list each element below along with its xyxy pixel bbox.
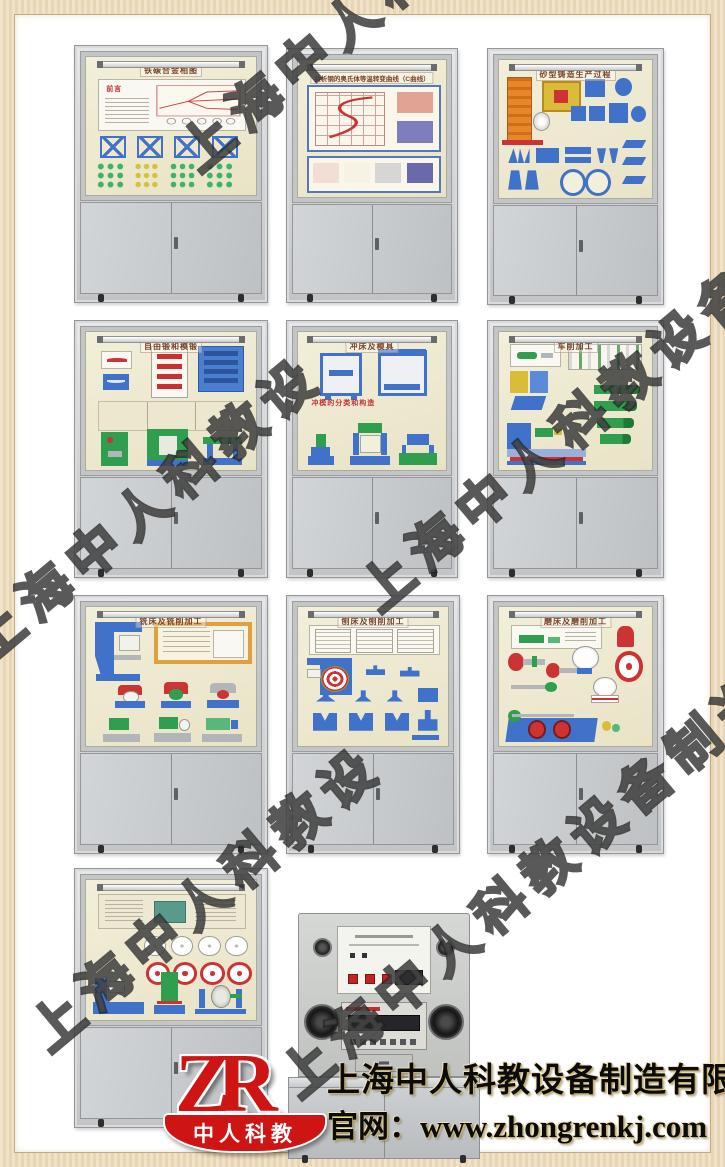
display-window (395, 970, 423, 985)
press-base (147, 460, 188, 466)
cutter-base (161, 701, 192, 709)
fixture-bed (154, 733, 191, 742)
large-speaker (304, 1004, 340, 1040)
press-bed (384, 384, 420, 390)
caster-wheel (98, 569, 104, 577)
stand (577, 668, 592, 674)
control-button (365, 974, 375, 984)
cassette-deck (341, 1002, 427, 1050)
large-speaker (428, 1004, 464, 1040)
shaft (511, 685, 548, 689)
process-block (585, 79, 605, 97)
diagram-divider (195, 402, 196, 430)
flat-bar (412, 735, 439, 741)
machine-head (108, 981, 125, 992)
control-panel-plate (337, 926, 431, 994)
forging-steps-plaque (151, 346, 189, 398)
stand-crank (230, 994, 241, 998)
process-block (609, 103, 627, 124)
die-base (203, 458, 242, 465)
die-model (350, 423, 390, 465)
display-case: 铣床及铣削加工 (80, 601, 262, 752)
caster-wheel (509, 845, 515, 853)
ring-center (626, 663, 632, 669)
diagram-divider (147, 402, 148, 430)
forging-steps (157, 350, 183, 394)
fixture-bed (202, 734, 243, 742)
c-curve (316, 93, 384, 145)
wheel-guard-model (617, 626, 634, 647)
cupola-furnace-model (507, 77, 532, 142)
indicator-light (350, 953, 355, 958)
micrograph-image (397, 121, 432, 144)
grinding-wheel (508, 653, 523, 671)
machine-model (154, 972, 185, 1014)
caster-wheel (308, 845, 314, 853)
caster-wheel (509, 569, 515, 577)
die-column (353, 433, 359, 456)
display-cabinet-5: 冲床及模具 冲模的分类和构造 (286, 320, 458, 578)
process-block (631, 106, 646, 123)
cabinet-doors (493, 205, 658, 296)
abrasive-disc (171, 936, 193, 956)
die-model (399, 434, 437, 464)
wheel-pattern (585, 169, 611, 196)
die-top (407, 434, 429, 445)
wheel-on-stand (572, 646, 596, 674)
wheel-center (210, 971, 215, 976)
cutter-disc (217, 690, 229, 699)
stand-wheel (211, 985, 231, 1008)
collar-disc (545, 682, 557, 692)
cabinet-doors (80, 753, 262, 845)
indicator-light (362, 953, 367, 958)
stand-upright (199, 989, 205, 1007)
angle-plate (511, 396, 546, 410)
machine-core (554, 90, 568, 104)
casting-pattern (536, 148, 559, 163)
casting-pattern (565, 157, 591, 164)
die-column (233, 444, 238, 458)
specimen-image (313, 163, 339, 183)
wheel-pattern (560, 169, 586, 196)
poster-lines (195, 900, 236, 924)
casting-pattern (508, 148, 529, 163)
photo-background: 铁碳合金相图 前言 (15, 15, 710, 1152)
poster-inset (213, 630, 244, 657)
grinder-wheel (528, 720, 546, 739)
planing-tool (400, 667, 420, 677)
section-label: 冲模的分类和构造 (311, 398, 375, 408)
die-punch (316, 434, 326, 446)
fluorescent-lamp (510, 64, 642, 71)
fluorescent-lamp (510, 336, 642, 343)
process-block (589, 106, 604, 121)
casting-pattern (508, 170, 522, 189)
die-base (399, 453, 437, 465)
lathe-detail (554, 429, 562, 435)
cutter-base (207, 700, 239, 709)
casting-pattern (565, 147, 591, 154)
machine-model (93, 978, 144, 1014)
turning-tool (594, 385, 640, 395)
shaper-model (307, 658, 352, 694)
punch-press-model (320, 353, 362, 396)
turning-tool (594, 401, 637, 411)
cutter-disc (169, 689, 182, 699)
crystal-lattice-model (137, 136, 163, 158)
backboard: 铁碳合金相图 前言 (85, 56, 257, 196)
press-window (159, 436, 177, 455)
poster-diagram (397, 629, 434, 652)
grinder-bed (505, 718, 597, 742)
lathe-model (507, 423, 587, 465)
lower-poster-strip (307, 156, 441, 193)
company-name: 上海中人科教设备制造有限公司 (327, 1053, 725, 1101)
caster-wheel (238, 294, 244, 302)
backboard: 冲床及模具 冲模的分类和构造 (297, 331, 447, 471)
bent-pattern (622, 157, 646, 165)
brand-block: ZR 中人科教 上海中人科教设备制造有限公司 官网：www.zhongrenkj… (155, 1045, 725, 1167)
display-cabinet-1: 铁碳合金相图 前言 (74, 45, 268, 303)
abrasive-disc (198, 936, 220, 956)
poster-machine-sketch (519, 635, 544, 643)
phase-diagram-chart (156, 85, 241, 126)
milling-machine-model (95, 622, 143, 680)
fluorescent-lamp (308, 64, 435, 71)
machine-detail (157, 1001, 181, 1004)
backboard: 刨床及刨削加工 (297, 606, 449, 747)
caster-wheel (431, 569, 437, 577)
grinder-rail (512, 714, 574, 717)
atom-ball-model (169, 162, 196, 188)
cutter-assembly (115, 685, 146, 709)
display-case: 车削加工 (493, 326, 658, 476)
mandrel-assembly (511, 682, 557, 692)
c-curve-poster (307, 85, 441, 152)
fixture-top (159, 717, 178, 730)
wheel-on-base (591, 677, 617, 703)
planing-tool (387, 690, 404, 701)
die-model (308, 434, 333, 464)
planing-tool (366, 665, 386, 675)
cutter-assembly (161, 682, 192, 708)
pulley-model (533, 112, 550, 131)
poster-machine-sketch (154, 901, 185, 923)
display-case: 刨床及刨削加工 (292, 601, 454, 752)
die-cavity (360, 435, 381, 453)
lathe-base (507, 461, 587, 465)
fluorescent-lamp (98, 61, 244, 68)
small-part (612, 724, 620, 732)
machine-column (161, 972, 178, 1000)
die-column (207, 444, 212, 458)
die-top-plate (203, 437, 242, 444)
caster-wheel (307, 294, 313, 302)
press-ram (329, 370, 354, 376)
tee-block (418, 710, 438, 731)
vee-block (349, 713, 373, 731)
backboard: 自由锻和模锻 (85, 331, 257, 471)
diagram-strip (98, 401, 246, 431)
poster-text-lines (105, 95, 149, 126)
tool-bit (541, 353, 553, 358)
grinder-wheel (553, 720, 571, 739)
atom-ball-model (205, 162, 234, 188)
fluorescent-lamp (98, 884, 244, 891)
hammer-anvil (108, 451, 122, 457)
cabinet-doors (493, 753, 658, 845)
specimen-image (344, 163, 370, 183)
machine-bed (93, 1002, 144, 1014)
die-shapes (204, 351, 238, 386)
display-case: 磨床及磨削加工 (493, 601, 658, 752)
backboard: 车削加工 (498, 331, 653, 471)
fixture-bed (103, 734, 140, 742)
fixture-model (202, 718, 243, 742)
hammer-detail (107, 437, 113, 443)
control-button (348, 974, 358, 984)
caster-wheel (238, 569, 244, 577)
caster-wheel (636, 296, 642, 304)
atom-ball-model (134, 162, 160, 188)
fluorescent-lamp (510, 611, 642, 618)
grinding-wheel-ring (615, 651, 643, 681)
process-block (615, 78, 632, 96)
specimen-image (375, 163, 401, 183)
punch-press-model (378, 350, 427, 396)
stand-base (195, 1009, 246, 1015)
tool-block (530, 371, 548, 393)
display-case: 共析钢的奥氏体等温转变曲线（C曲线） (292, 54, 452, 203)
control-button (382, 974, 392, 984)
display-case: 自由锻和模锻 (80, 326, 262, 476)
backboard: 磨床及磨削加工 (498, 606, 653, 747)
display-cabinet-4: 自由锻和模锻 (74, 320, 268, 578)
furnace-platform (502, 140, 543, 146)
die-set-model (203, 437, 242, 465)
forged-piece (107, 358, 127, 361)
abrasive-disc (225, 936, 247, 956)
stand-upright (236, 989, 242, 1007)
phase-diagram-poster: 前言 (98, 79, 246, 131)
caster-wheel (509, 296, 515, 304)
forging-hammer-model (101, 432, 128, 467)
poster-label: 前言 (106, 84, 122, 94)
cabinet-title: 共析钢的奥氏体等温转变曲线（C曲线） (310, 72, 433, 84)
cabinet-doors (493, 477, 658, 569)
fixture-detail (231, 720, 238, 729)
poster-diagram (315, 629, 352, 652)
display-case: 铁碳合金相图 前言 (80, 51, 262, 201)
poster-lines (105, 900, 143, 924)
caster-wheel (431, 294, 437, 302)
backboard (85, 879, 257, 1021)
casting-pattern (525, 170, 539, 189)
die-forging-panel (198, 346, 244, 392)
website-url: 官网：www.zhongrenkj.com (327, 1101, 707, 1146)
fixture-model (154, 717, 191, 742)
surface-grinder-model (507, 707, 596, 742)
shaft-collar (532, 656, 537, 667)
poster-sketch (163, 630, 210, 655)
planing-poster (309, 625, 440, 655)
cabinet-doors (80, 202, 262, 294)
crystal-lattice-model (212, 136, 238, 158)
display-case: 砂型铸造生产过程 (493, 54, 658, 204)
lathe-bed (507, 449, 587, 456)
die-column (402, 445, 407, 453)
die-base (311, 447, 330, 456)
casting-pattern (597, 148, 606, 163)
caster-wheel (307, 569, 313, 577)
fixture-disc (179, 719, 191, 731)
wheel-shaft-assembly (508, 653, 545, 671)
display-cabinet-3: 砂型铸造生产过程 (487, 48, 664, 305)
shaper-arm (307, 669, 321, 679)
backboard: 共析钢的奥氏体等温转变曲线（C曲线） (297, 59, 447, 198)
caster-wheel (432, 845, 438, 853)
backboard: 铣床及铣削加工 (85, 606, 257, 747)
cutter-base (115, 701, 146, 708)
grinding-wheel (546, 663, 560, 678)
fixture-top (206, 718, 230, 729)
poster-diagram (356, 629, 393, 652)
display-cabinet-7: 铣床及铣削加工 (74, 595, 268, 854)
fluorescent-lamp (98, 336, 244, 343)
fluorescent-lamp (309, 611, 438, 618)
fixture-model (103, 718, 140, 742)
small-speaker (313, 938, 332, 957)
workpiece-cylinder (517, 352, 538, 359)
wheel-center (237, 971, 242, 976)
cabinet-doors (80, 477, 262, 569)
specimen-image (407, 163, 433, 183)
cutoff-wheel (200, 962, 225, 985)
cutter-assembly (207, 683, 239, 708)
crystal-lattice-model (174, 136, 200, 158)
display-case (80, 874, 262, 1026)
forging-sample-plaque (103, 374, 129, 391)
cabinet-doors (292, 204, 452, 294)
planing-tool (355, 690, 372, 701)
process-block (571, 106, 586, 121)
backboard: 砂型铸造生产过程 (498, 59, 653, 199)
die-column (381, 433, 387, 456)
caster-wheel (238, 845, 244, 853)
cutoff-wheel (227, 962, 252, 985)
atom-ball-model (96, 162, 125, 188)
cabinet-doors (292, 753, 454, 845)
fixture-top (109, 718, 130, 730)
caster-wheel (98, 294, 104, 302)
lathe-toolpost (535, 428, 553, 437)
diagram-poster (98, 894, 246, 930)
chart-grid (315, 92, 385, 146)
mill-base (96, 674, 140, 681)
zr-logo-banner: 中人科教 (163, 1113, 327, 1153)
display-cabinet-6: 车削加工 (487, 320, 664, 578)
bent-pattern (622, 140, 646, 148)
grinding-wheel-white (572, 646, 598, 670)
abrasive-disc (144, 936, 166, 956)
casting-pattern (609, 148, 618, 163)
cassette-slot (348, 1015, 420, 1031)
display-cabinet-8: 刨床及刨削加工 (286, 595, 460, 854)
tool-block (510, 371, 528, 393)
machine-base (154, 1005, 185, 1014)
caster-wheel (98, 845, 104, 853)
turning-tool (597, 418, 634, 428)
die-base (350, 456, 390, 465)
display-cabinet-9: 磨床及磨削加工 (487, 595, 664, 854)
poster-machine-sketch (548, 637, 560, 644)
bent-pattern (622, 176, 646, 184)
small-speaker (436, 938, 455, 957)
fluorescent-lamp (308, 336, 435, 343)
zr-logo: ZR 中人科教 (163, 1049, 325, 1157)
caster-wheel (98, 1119, 104, 1127)
wheel-stand-model (195, 983, 246, 1014)
die-column (429, 445, 434, 453)
planing-tool (418, 688, 438, 702)
turning-tool (600, 434, 631, 444)
caster-wheel (636, 569, 642, 577)
micrograph-image (397, 92, 432, 113)
forged-piece (107, 380, 125, 383)
fluorescent-lamp (98, 611, 244, 618)
bullseye-wheel (321, 666, 349, 692)
crystal-lattice-model (100, 136, 126, 158)
poster-lines (565, 631, 595, 644)
press-model (147, 429, 188, 466)
vee-block (385, 713, 409, 731)
display-case: 冲床及模具 冲模的分类和构造 (292, 326, 452, 476)
striped-base (591, 695, 619, 703)
forging-sample-plaque (101, 351, 132, 368)
mill-motor (119, 635, 140, 651)
photo-frame: 铁碳合金相图 前言 (0, 0, 725, 1167)
mill-table (114, 655, 140, 660)
display-cabinet-2: 共析钢的奥氏体等温转变曲线（C曲线） (286, 48, 458, 303)
die-base (308, 456, 333, 465)
milling-poster (154, 622, 252, 663)
die-top (358, 423, 382, 432)
cabinet-doors (292, 477, 452, 569)
caster-wheel (636, 845, 642, 853)
small-part (602, 721, 611, 731)
lathe-headstock (507, 423, 531, 449)
vee-block (313, 713, 337, 731)
